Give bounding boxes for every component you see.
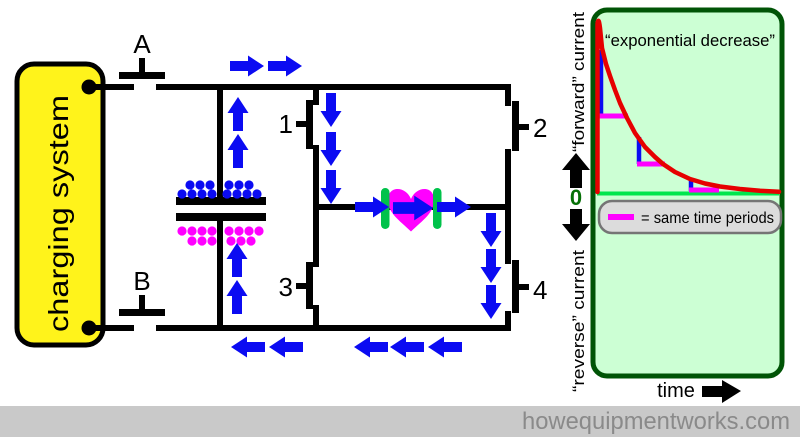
reverse-direction-arrow-icon bbox=[562, 209, 590, 241]
switch-a-stem bbox=[139, 58, 145, 73]
forward-direction-arrow-icon bbox=[562, 153, 590, 188]
defibrillator-circuit-diagram: howequipmentworks.com charging system A … bbox=[0, 0, 800, 437]
current-arrow-left-icon bbox=[269, 337, 303, 358]
graph-legend: = same time periods bbox=[599, 201, 781, 233]
current-arrow-down-icon bbox=[321, 93, 342, 127]
current-arrow-down-icon bbox=[481, 213, 502, 247]
switch-b-stem bbox=[139, 295, 145, 310]
current-arrow-up-icon bbox=[228, 134, 249, 168]
current-arrow-left-icon bbox=[231, 337, 265, 358]
current-arrow-down-icon bbox=[481, 285, 502, 319]
switch-1-tick bbox=[296, 121, 306, 127]
switch-3-tick bbox=[296, 283, 306, 289]
switch-2: 2 bbox=[512, 101, 547, 151]
y-axis-forward-label: “forward” current bbox=[570, 12, 588, 152]
switch-b-bar bbox=[119, 309, 165, 316]
switch-3: 3 bbox=[279, 262, 313, 309]
charging-system: charging system bbox=[17, 64, 103, 345]
switch-1-label: 1 bbox=[279, 109, 293, 139]
switch-a-label: A bbox=[133, 29, 151, 59]
switch-a-bar bbox=[119, 72, 165, 79]
switch-4-label: 4 bbox=[533, 275, 547, 305]
capacitor-plate-bottom bbox=[176, 213, 266, 221]
switch-B: B bbox=[119, 266, 165, 316]
switch-A: A bbox=[119, 29, 165, 79]
switch-2-bar bbox=[512, 101, 519, 151]
current-arrow-down-icon bbox=[321, 170, 342, 204]
current-arrow-left-icon bbox=[428, 337, 462, 358]
switch-1: 1 bbox=[279, 100, 313, 149]
discharge-graph: “exponential decrease” = same time perio… bbox=[562, 10, 782, 403]
switch-4-bar bbox=[512, 260, 519, 313]
current-arrow-left-icon bbox=[354, 337, 388, 358]
graph-y-axis: “forward” current 0 “reverse” current bbox=[562, 12, 590, 392]
x-axis-time-label: time bbox=[657, 380, 695, 402]
switch-2-tick bbox=[519, 124, 529, 130]
charging-system-label: charging system bbox=[43, 95, 74, 332]
switch-3-label: 3 bbox=[279, 272, 293, 302]
y-axis-reverse-label: “reverse” current bbox=[570, 250, 588, 392]
graph-title: “exponential decrease” bbox=[605, 32, 775, 50]
switch-2-label: 2 bbox=[533, 113, 547, 143]
switch-b-label: B bbox=[133, 266, 150, 296]
switch-4: 4 bbox=[512, 260, 547, 313]
current-arrow-down-icon bbox=[481, 249, 502, 283]
switch-1-bar bbox=[306, 100, 313, 149]
graph-x-axis: time bbox=[657, 380, 741, 403]
current-arrow-down-icon bbox=[321, 132, 342, 166]
legend-label: = same time periods bbox=[641, 210, 774, 227]
y-axis-zero-label: 0 bbox=[570, 185, 582, 210]
switch-4-tick bbox=[519, 284, 529, 290]
current-arrow-up-icon bbox=[228, 97, 249, 131]
current-flow-arrows bbox=[227, 56, 502, 358]
current-arrow-left-icon bbox=[390, 337, 424, 358]
current-arrow-right-icon bbox=[268, 56, 302, 77]
current-arrow-up-icon bbox=[227, 280, 248, 314]
capacitor-plate-top bbox=[176, 197, 266, 205]
current-arrow-up-icon bbox=[227, 243, 248, 277]
diagram-canvas: howequipmentworks.com charging system A … bbox=[0, 0, 800, 437]
switch-3-bar bbox=[306, 262, 313, 309]
current-arrow-right-icon bbox=[230, 56, 264, 77]
time-direction-arrow-icon bbox=[702, 380, 741, 403]
current-arrow-right-icon bbox=[437, 197, 471, 218]
site-credit: howequipmentworks.com bbox=[522, 408, 790, 435]
